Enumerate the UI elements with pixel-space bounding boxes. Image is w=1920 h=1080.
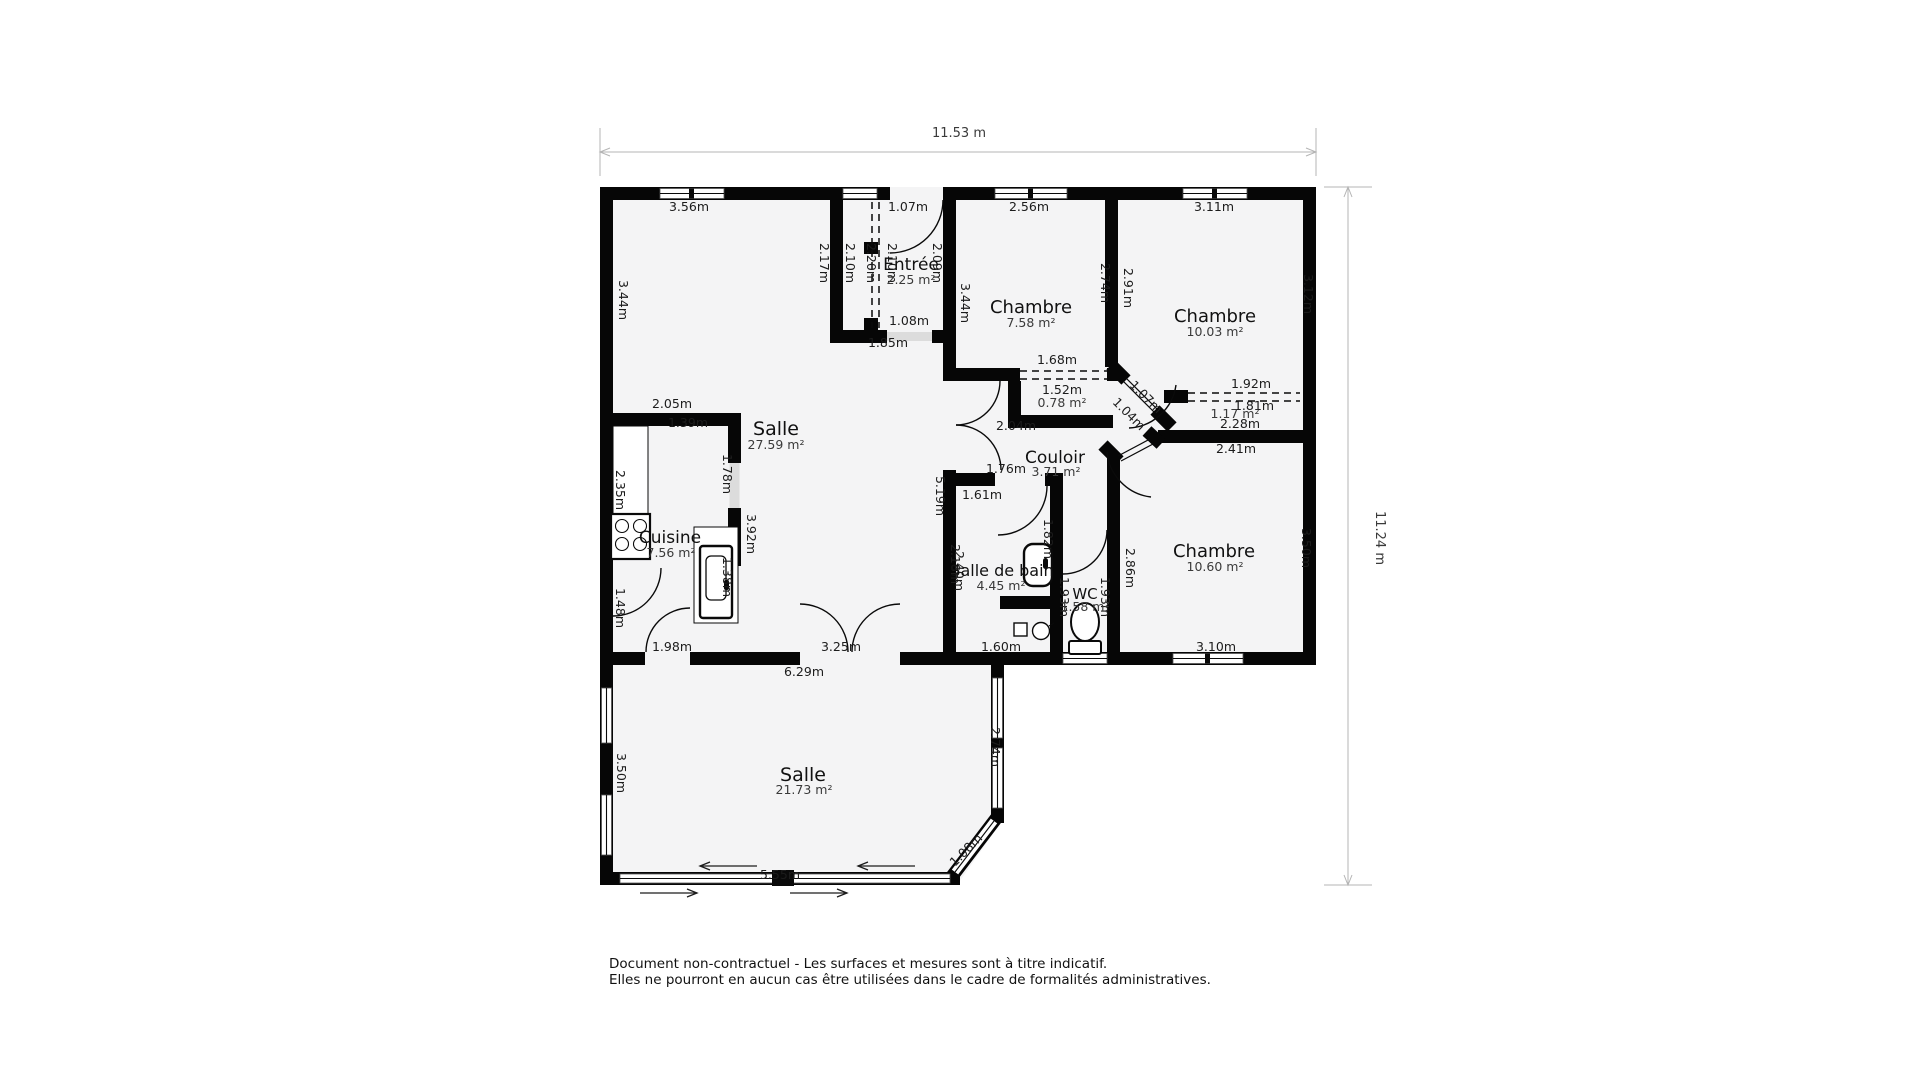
dim-label: 2.86m	[1123, 548, 1138, 588]
dim-label: 1.76m	[986, 461, 1026, 476]
dim-label: 1.82m	[1041, 519, 1056, 559]
dim-label: 1.08m	[889, 313, 929, 328]
area-label: 2.25 m²	[887, 272, 936, 287]
window-icon	[843, 189, 877, 199]
dim-label: 3.12m	[1301, 274, 1316, 314]
wall	[1164, 390, 1188, 403]
dim-label: 2.17m	[817, 243, 832, 283]
dim-label: 3.25m	[821, 639, 861, 654]
dim-label: 5.19m	[933, 476, 948, 516]
dim-label: 1.78m	[720, 454, 735, 494]
window-icon	[660, 189, 724, 199]
area-label: 27.59 m²	[748, 437, 805, 452]
area-label: 10.03 m²	[1187, 324, 1244, 339]
dim-label: 3.92m	[744, 514, 759, 554]
area-label: 21.73 m²	[776, 782, 833, 797]
disclaimer: Document non-contractuel - Les surfaces …	[609, 956, 1211, 988]
dim-label: 2.20m	[864, 243, 879, 283]
wall	[1303, 187, 1316, 665]
dim-label: 2.35m	[613, 470, 628, 510]
dim-label: 1.38m	[720, 557, 735, 597]
dim-label: 1.92m	[1231, 376, 1271, 391]
floor-plan-drawing: 11.53 m 11.24 m 3.56m 1.07m 2.56m 3.11m …	[0, 0, 1920, 1080]
dim-label: 2.74m	[988, 727, 1003, 767]
area-label: 4.45 m²	[977, 578, 1026, 593]
wall	[943, 368, 1020, 381]
dim-label: 2.28m	[1220, 416, 1260, 431]
dim-label: 3.50m	[614, 753, 629, 793]
dim-label: 1.48m	[613, 588, 628, 628]
dim-label: 2.10m	[843, 243, 858, 283]
wall	[943, 200, 956, 381]
wall	[864, 318, 878, 330]
dim-label: 1.60m	[981, 639, 1021, 654]
floor-plan-document: 11.53 m 11.24 m 3.56m 1.07m 2.56m 3.11m …	[0, 0, 1920, 1080]
dim-label: 3.10m	[1196, 639, 1236, 654]
dim-label: 1.61m	[962, 487, 1002, 502]
dim-label: 3.44m	[616, 280, 631, 320]
dim-label: 2.56m	[1009, 199, 1049, 214]
window-icon	[1173, 654, 1243, 664]
wall	[1000, 596, 1053, 609]
wall	[1107, 455, 1120, 652]
disclaimer-line-2: Elles ne pourront en aucun cas être util…	[609, 972, 1211, 988]
dim-label: 1.85m	[868, 335, 908, 350]
area-label: 1.58 m²	[1061, 599, 1110, 614]
area-label: 10.60 m²	[1187, 559, 1244, 574]
dim-label: 2.05m	[652, 396, 692, 411]
overall-width-label: 11.53 m	[932, 126, 986, 141]
dim-label: 2.74m	[1098, 263, 1113, 303]
disclaimer-line-1: Document non-contractuel - Les surfaces …	[609, 956, 1107, 972]
appliance-icon	[1014, 623, 1027, 636]
dim-label: 3.11m	[1194, 199, 1234, 214]
dim-label: 1.68m	[1037, 352, 1077, 367]
dim-label: 3.56m	[669, 199, 709, 214]
area-label: 7.56 m²	[647, 545, 696, 560]
area-label: 3.71 m²	[1032, 464, 1081, 479]
dim-label: 1.98m	[652, 639, 692, 654]
area-label: 7.58 m²	[1007, 315, 1056, 330]
dim-label: 1.39m	[668, 415, 708, 430]
window-icon	[995, 189, 1067, 199]
window-icon	[602, 795, 612, 855]
dim-label: 2.04m	[996, 418, 1036, 433]
dim-label: 2.41m	[1216, 441, 1256, 456]
area-label: 0.78 m²	[1038, 395, 1087, 410]
dim-label: 3.44m	[958, 283, 973, 323]
wall	[1008, 381, 1021, 415]
overall-height-label: 11.24 m	[1372, 511, 1387, 565]
dim-label: 5.55m	[760, 867, 800, 882]
window-icon	[1183, 189, 1247, 199]
dim-label: 6.29m	[784, 664, 824, 679]
dim-label: 1.07m	[888, 199, 928, 214]
window-icon	[602, 688, 612, 743]
dim-label: 3.50m	[1299, 528, 1314, 568]
dim-label: 2.91m	[1121, 268, 1136, 308]
